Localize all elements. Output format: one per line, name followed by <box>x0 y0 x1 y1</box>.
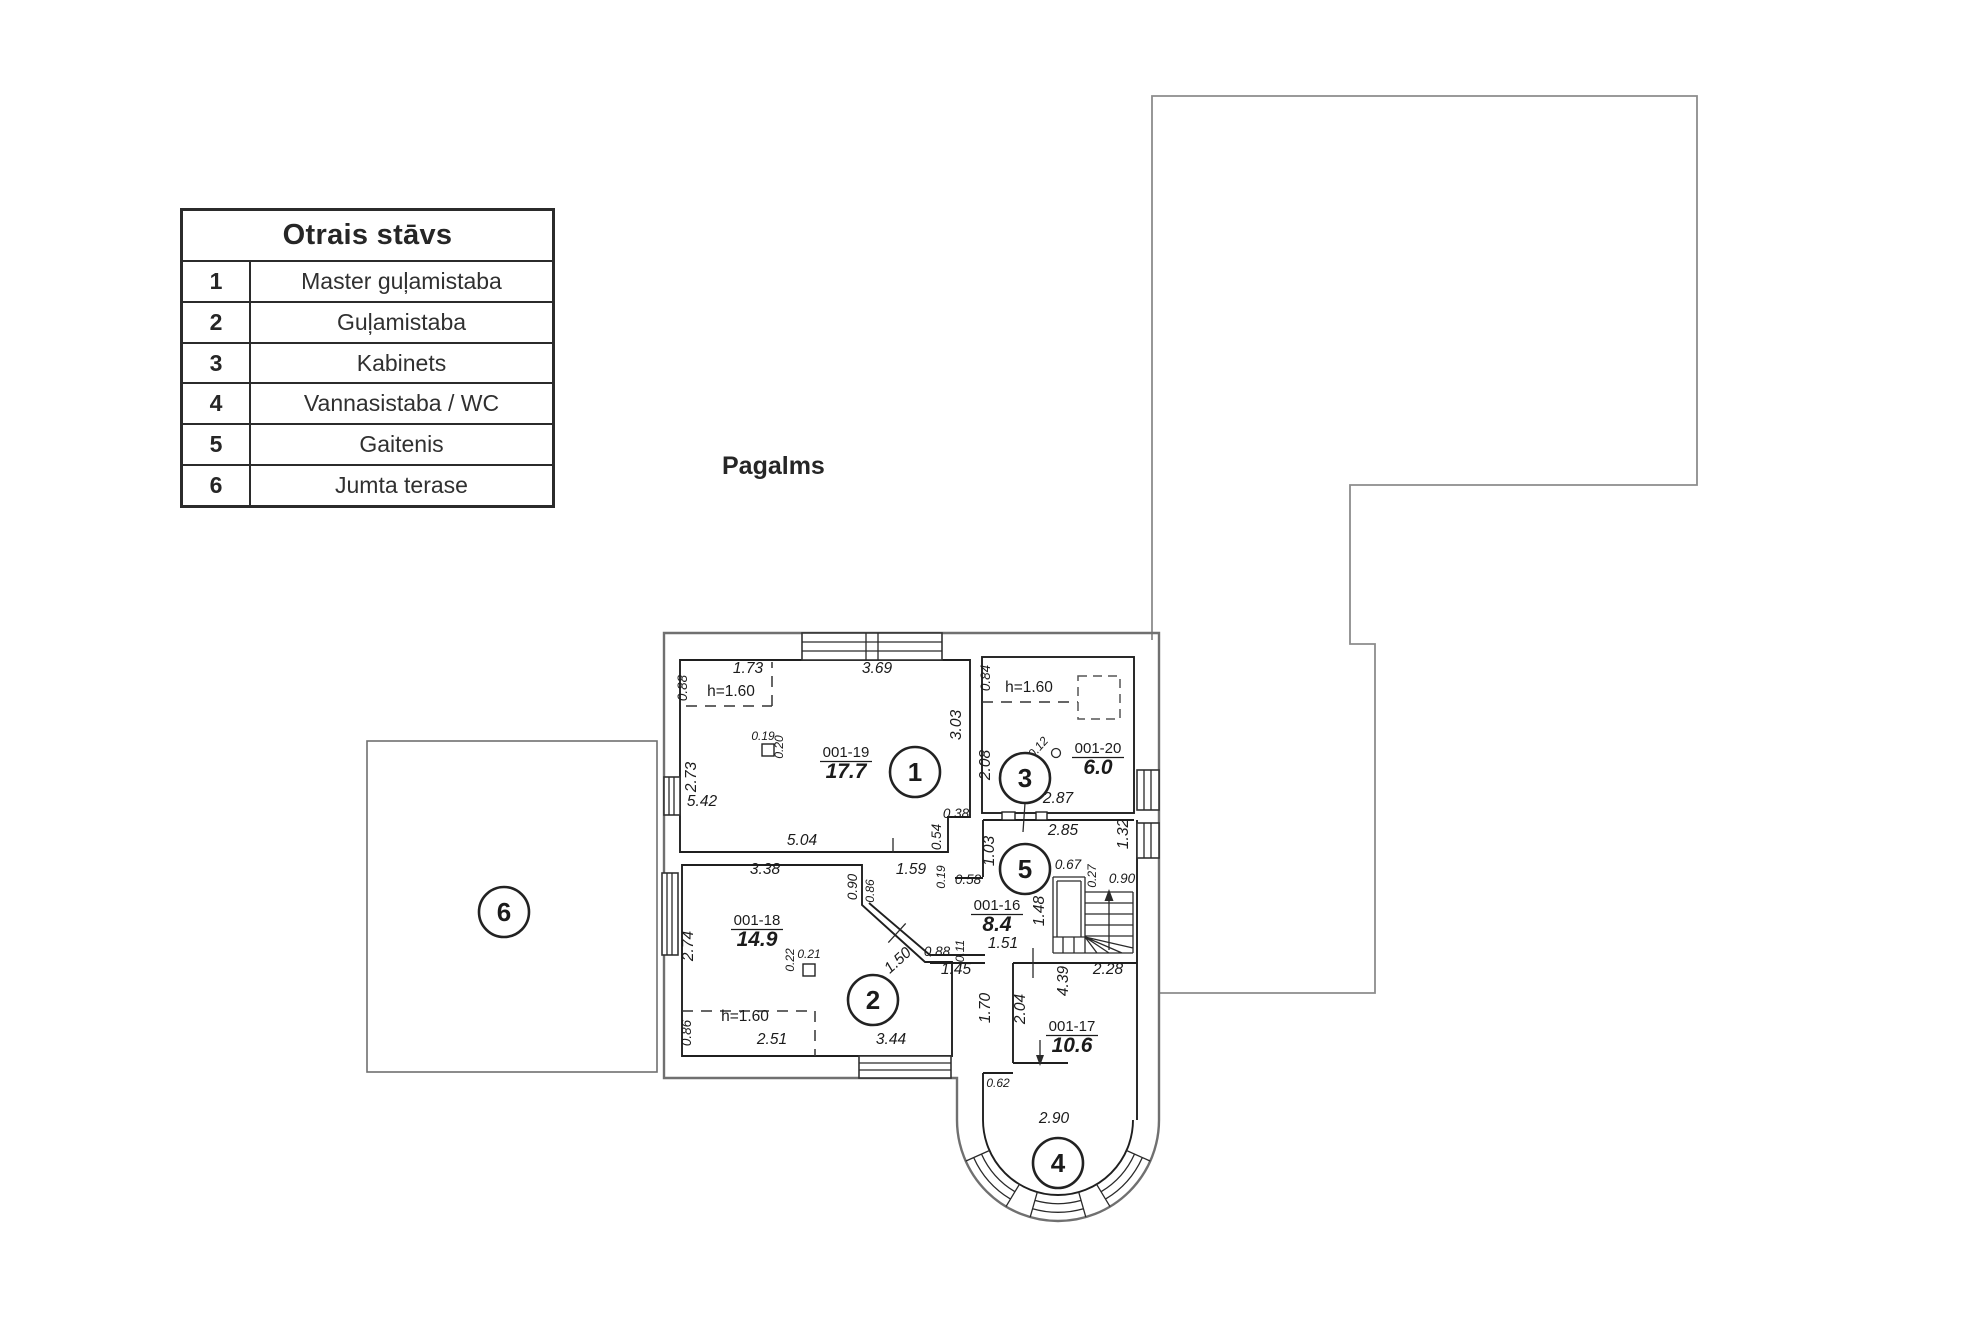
room-number-text: 5 <box>1018 854 1032 884</box>
dimension-label: 0.84 <box>978 665 993 691</box>
dimension-label: 2.08 <box>977 750 994 782</box>
dimension-label: 0.90 <box>1109 871 1136 886</box>
dimension-label: 2.74 <box>680 931 697 963</box>
dimension-label: 3.03 <box>948 710 965 741</box>
dimension-label: 1.73 <box>733 660 764 677</box>
room-code-label: 001-18 <box>734 912 781 929</box>
dimension-label: 2.28 <box>1092 961 1124 978</box>
dimension-label: 1.59 <box>896 861 927 878</box>
dimension-label: 0.20 <box>772 735 786 759</box>
yard-outline <box>1152 96 1697 993</box>
dimension-label: 0.38 <box>943 806 970 821</box>
dimension-label: 1.32 <box>1115 819 1132 850</box>
room-code-label: 001-19 <box>823 744 870 761</box>
dimension-label: 0.67 <box>1055 857 1082 872</box>
plan-labels: 1.730.88h=1.603.693.030.190.202.735.425.… <box>479 660 1136 1188</box>
vent-pipe-icon <box>1052 749 1061 758</box>
room-area-label: 14.9 <box>737 928 778 951</box>
room-number-text: 1 <box>908 757 922 787</box>
dimension-label: 2.90 <box>1038 1110 1070 1127</box>
room-number-text: 6 <box>497 897 511 927</box>
dimension-label: 0.27 <box>1085 863 1099 888</box>
room-area-label: 17.7 <box>826 760 868 783</box>
dimension-label: 0.21 <box>797 947 820 961</box>
dimension-label: 0.54 <box>929 824 944 850</box>
dimension-label: 2.85 <box>1047 822 1079 839</box>
dimension-label: 1.70 <box>977 993 994 1024</box>
dimension-label: 2.51 <box>756 1031 787 1048</box>
room-code-label: 001-17 <box>1049 1018 1096 1035</box>
room-code-label: 001-16 <box>974 897 1021 914</box>
dimension-label: 0.86 <box>863 879 877 903</box>
dimension-label: 1.51 <box>988 935 1018 952</box>
room-area-label: 8.4 <box>982 913 1012 936</box>
dimension-label: 4.39 <box>1055 966 1072 997</box>
floor-plan-drawing: 1.730.88h=1.603.693.030.190.202.735.425.… <box>0 0 1987 1325</box>
dimension-label: 3.38 <box>750 861 781 878</box>
dimension-label: 1.03 <box>981 836 998 867</box>
dimension-label: 3.69 <box>862 660 893 677</box>
dimension-label: 0.86 <box>679 1019 694 1046</box>
dimension-label: 1.45 <box>941 961 972 978</box>
room-area-label: 10.6 <box>1052 1034 1093 1057</box>
room-code-label: 001-20 <box>1075 740 1122 757</box>
dimension-label: 0.88 <box>675 674 690 701</box>
dimension-label: h=1.60 <box>721 1008 769 1025</box>
dimension-label: h=1.60 <box>707 683 755 700</box>
dimension-label: 2.73 <box>683 762 700 794</box>
room-number-text: 2 <box>866 985 880 1015</box>
floor-plan-page: Otrais stāvs 1 Master guļamistaba 2 Guļa… <box>0 0 1987 1325</box>
dimension-label: 0.19 <box>934 865 948 889</box>
dimension-label: 0.90 <box>845 873 860 900</box>
dimension-label: 5.42 <box>687 793 718 810</box>
dimension-label: h=1.60 <box>1005 679 1053 696</box>
room-area-label: 6.0 <box>1083 756 1113 779</box>
room-number-text: 4 <box>1051 1148 1066 1178</box>
dimension-label: 5.04 <box>787 832 818 849</box>
dimension-label: 0.88 <box>924 944 951 959</box>
dimension-label: 3.44 <box>876 1031 907 1048</box>
dimension-label: 0.11 <box>953 940 967 962</box>
dimension-label: 0.58 <box>955 872 982 887</box>
dimension-label: 0.22 <box>783 948 797 972</box>
dimension-label: 2.04 <box>1012 994 1029 1026</box>
dimension-label: 1.48 <box>1031 896 1048 927</box>
skylight-dashed-box <box>1078 676 1120 719</box>
dimension-label: 0.62 <box>986 1076 1010 1090</box>
room-number-text: 3 <box>1018 763 1032 793</box>
